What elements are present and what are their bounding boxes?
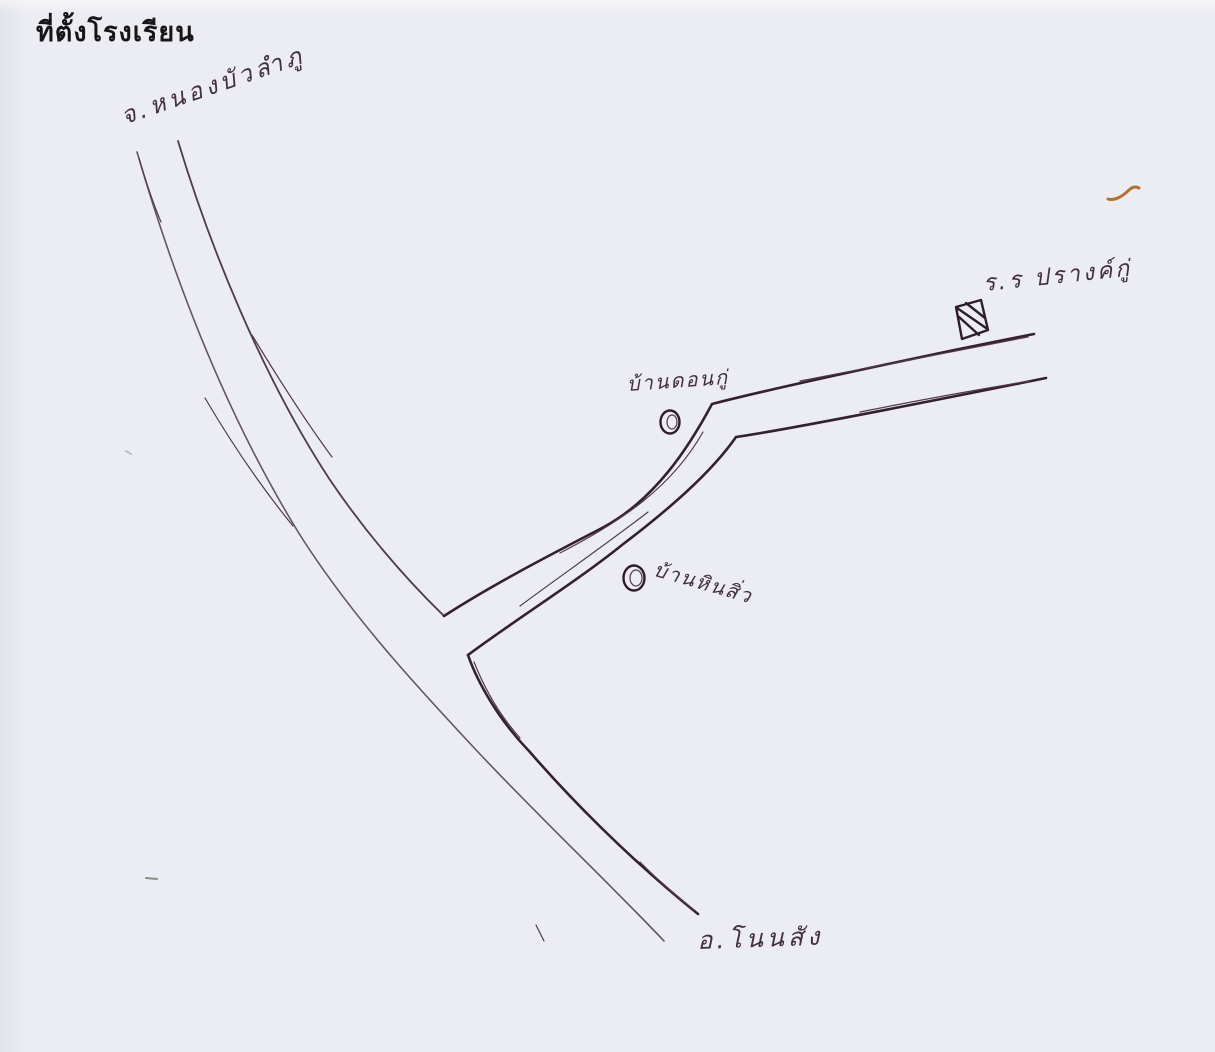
- stray-pen-tick: [536, 925, 544, 941]
- school-road-lower-line: [468, 378, 1046, 655]
- main-road-west-line: [137, 152, 664, 941]
- hin-siw-village-marker: [624, 566, 645, 591]
- map-drawing: [0, 0, 1215, 1052]
- paper-speck-left: [146, 878, 157, 879]
- school-marker: [956, 300, 988, 339]
- paper-speck-upper-left: [126, 451, 131, 454]
- main-road-west-overdraw: [139, 158, 293, 526]
- school-road-lower-overdraw: [520, 381, 1030, 606]
- school-road-upper-line: [444, 334, 1034, 616]
- main-road-east-overdraw: [252, 335, 332, 457]
- nonsang-road-east-line: [468, 655, 698, 914]
- don-ku-village-marker: [661, 411, 680, 434]
- scanned-map-page: ที่ตั้งโรงเรียน: [0, 0, 1215, 1052]
- brown-squiggle-mark: [1108, 187, 1139, 200]
- nonsang-road-overdraw: [474, 662, 694, 910]
- ink-dot: [684, 159, 690, 167]
- label-district-non-sang: อ.โนนสัง: [697, 917, 824, 961]
